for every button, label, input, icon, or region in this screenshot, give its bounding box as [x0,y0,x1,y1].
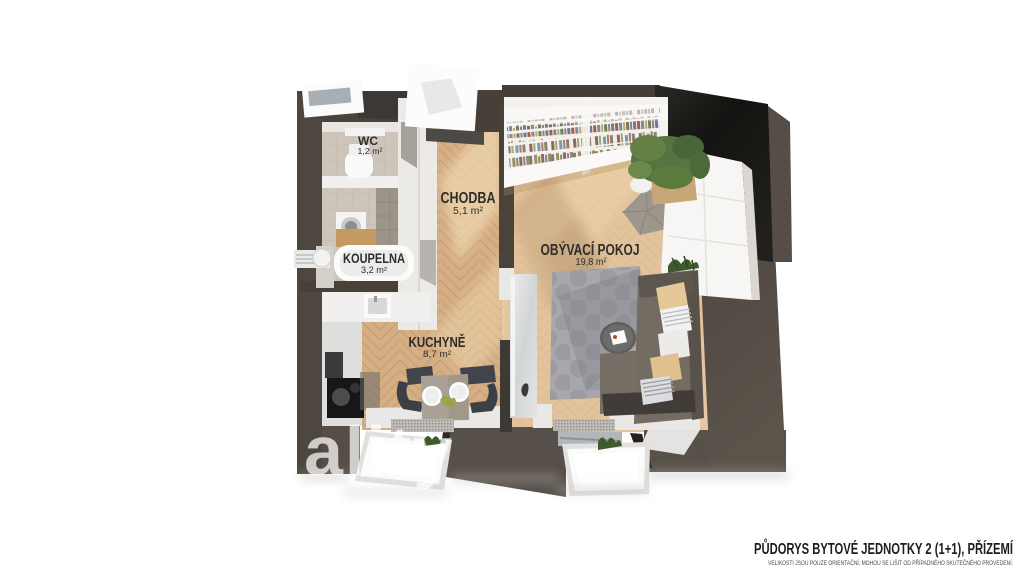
svg-text:19,8 m²: 19,8 m² [576,257,608,268]
svg-text:ality: ality [304,412,454,490]
svg-text:CHODBA: CHODBA [441,190,496,207]
svg-text:8,7 m²: 8,7 m² [423,349,451,360]
svg-text:3,2 m²: 3,2 m² [361,265,387,275]
svg-text:PŮDORYS BYTOVÉ JEDNOTKY 2 (1+1: PŮDORYS BYTOVÉ JEDNOTKY 2 (1+1), PŘÍZEMÍ [754,539,1013,558]
svg-text:1,2 m²: 1,2 m² [358,146,383,156]
svg-text:VELIKOSTI JSOU POUZE ORIENTAČN: VELIKOSTI JSOU POUZE ORIENTAČNÍ, MOHOU S… [768,558,1013,567]
svg-text:5,1 m²: 5,1 m² [453,206,484,217]
svg-text:KOUPELNA: KOUPELNA [343,251,405,266]
